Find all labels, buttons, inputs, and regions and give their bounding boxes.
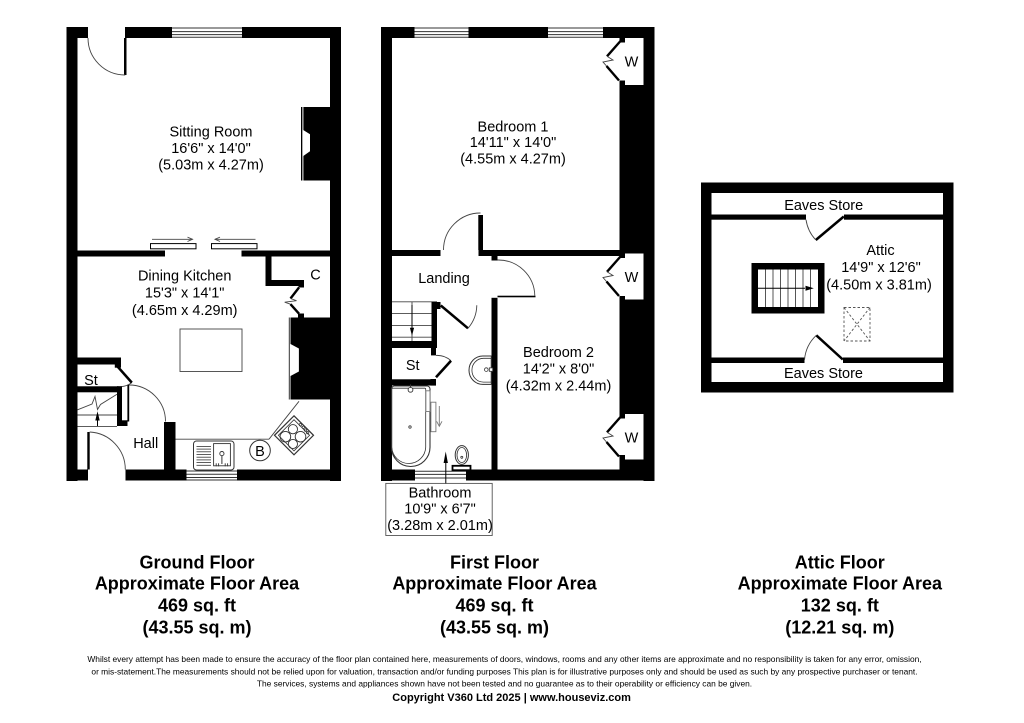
svg-text:W: W [625,54,639,70]
svg-text:14'2" x 8'0": 14'2" x 8'0" [523,362,594,378]
svg-text:(4.32m x 2.44m): (4.32m x 2.44m) [506,379,612,395]
svg-text:Bedroom 2: Bedroom 2 [523,345,594,361]
svg-text:Approximate Floor Area: Approximate Floor Area [738,574,943,594]
svg-text:Eaves Store: Eaves Store [784,198,863,214]
svg-text:Copyright V360 Ltd 2025 | www.: Copyright V360 Ltd 2025 | www.houseviz.c… [392,692,631,704]
svg-text:(5.03m x 4.27m): (5.03m x 4.27m) [158,157,264,173]
svg-text:Whilst every attempt has been: Whilst every attempt has been made to en… [87,654,921,664]
svg-text:Bedroom 1: Bedroom 1 [478,119,549,135]
svg-text:Attic: Attic [866,243,894,259]
svg-text:469 sq. ft: 469 sq. ft [158,596,236,616]
svg-text:Eaves Store: Eaves Store [784,366,863,382]
svg-text:Approximate Floor Area: Approximate Floor Area [95,574,300,594]
svg-text:10'9" x 6'7": 10'9" x 6'7" [404,501,475,517]
svg-text:or mis-statement.The measureme: or mis-statement.The measurements should… [91,666,917,676]
svg-text:(12.21 sq. m): (12.21 sq. m) [785,617,894,637]
svg-text:Bathroom: Bathroom [409,485,472,501]
svg-text:Hall: Hall [133,436,158,452]
svg-text:The services, systems and appl: The services, systems and appliances sho… [257,679,752,689]
svg-text:W: W [625,270,639,286]
svg-text:(4.65m x 4.29m): (4.65m x 4.29m) [132,303,238,319]
svg-text:14'9" x 12'6": 14'9" x 12'6" [841,260,921,276]
svg-text:Ground Floor: Ground Floor [140,552,255,572]
svg-text:Dining Kitchen: Dining Kitchen [138,269,232,285]
svg-text:14'11" x 14'0": 14'11" x 14'0" [470,135,557,151]
svg-text:Sitting Room: Sitting Room [169,125,252,141]
svg-text:(43.55 sq. m): (43.55 sq. m) [142,617,251,637]
svg-text:469 sq. ft: 469 sq. ft [455,596,533,616]
svg-text:C: C [310,268,320,284]
svg-text:Landing: Landing [418,271,470,287]
svg-text:(4.50m x 3.81m): (4.50m x 3.81m) [826,278,932,294]
svg-text:(4.55m x 4.27m): (4.55m x 4.27m) [460,152,566,168]
svg-text:B: B [255,444,265,460]
svg-text:Attic Floor: Attic Floor [795,552,885,572]
svg-text:132 sq. ft: 132 sq. ft [801,596,879,616]
svg-text:St: St [406,358,420,374]
svg-text:St: St [84,373,98,389]
svg-text:(3.28m x 2.01m): (3.28m x 2.01m) [387,518,493,534]
svg-text:First Floor: First Floor [450,552,539,572]
svg-text:Approximate Floor Area: Approximate Floor Area [392,574,597,594]
svg-text:W: W [625,430,639,446]
svg-text:(43.55 sq. m): (43.55 sq. m) [440,617,549,637]
svg-text:15'3" x 14'1": 15'3" x 14'1" [145,286,225,302]
svg-text:16'6" x 14'0": 16'6" x 14'0" [171,141,251,157]
